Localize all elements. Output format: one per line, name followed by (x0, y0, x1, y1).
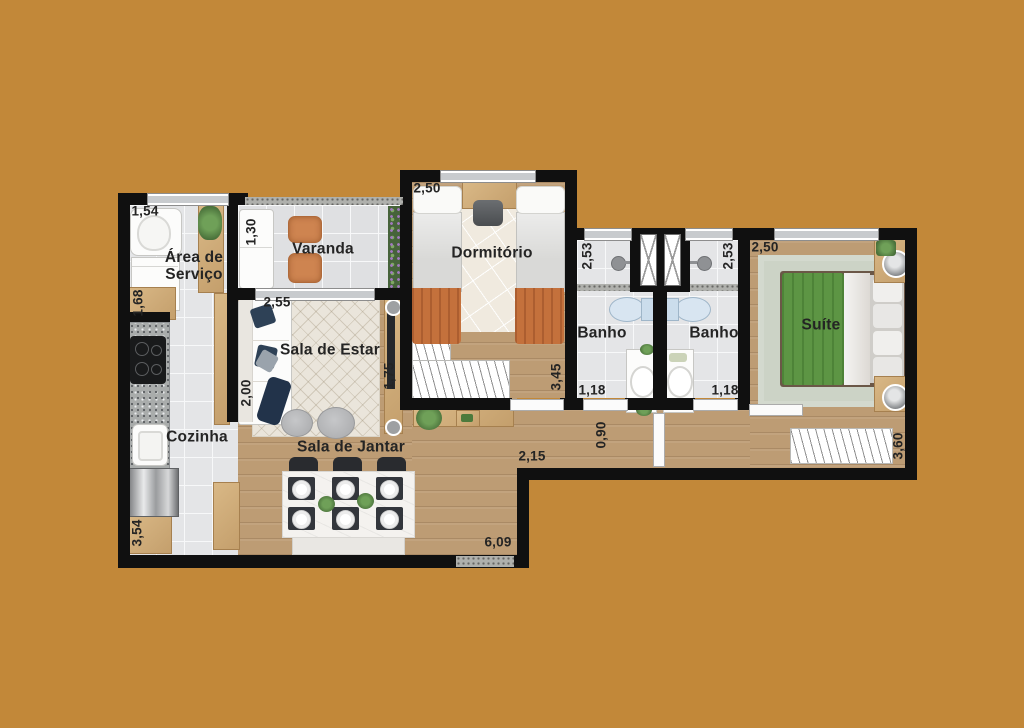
wall-outer-left (118, 193, 130, 568)
window-dormitorio (441, 171, 535, 182)
wall-step (517, 468, 529, 568)
wall-dormitorio-right (565, 172, 577, 410)
suite-pillow (872, 330, 903, 356)
toilet-bowl-left (609, 297, 645, 322)
toilet-tank-right (666, 298, 679, 321)
wall-divider-kitchen-living (227, 193, 238, 422)
shower-partition-right (690, 284, 738, 291)
room-label-dormitorio: Dormitório (451, 244, 532, 261)
varanda-pouf (288, 216, 322, 243)
dim-dormitorio-width: 2,50 (413, 182, 440, 197)
wall-duct-block (630, 228, 690, 292)
door-hallway (653, 413, 665, 467)
dim-dormitorio-height: 3,45 (550, 363, 565, 390)
room-label-suite: Suíte (802, 316, 841, 333)
dim-estar-depth: 1,75 (383, 362, 398, 389)
dim-banho-right-width: 1,18 (711, 384, 738, 399)
wall-bath-suite-divider (738, 228, 750, 410)
suite-plant (876, 240, 896, 256)
dim-banho-right-height: 2,53 (722, 242, 737, 269)
window-service (148, 194, 228, 205)
bed-pillow (516, 186, 565, 214)
dim-estar-width: 2,55 (263, 296, 290, 311)
dim-hall-height: 0,90 (595, 421, 610, 448)
dim-suite-width: 2,50 (751, 241, 778, 256)
dim-suite-height: 3,60 (892, 432, 907, 459)
dim-servico-height: 1,68 (132, 289, 147, 316)
suite-pillow-area (870, 275, 904, 383)
wall-varanda-living-b (373, 288, 412, 300)
dim-varanda-width: 1,30 (245, 218, 260, 245)
planter-green (461, 414, 473, 422)
room-label-varanda: Varanda (292, 240, 354, 257)
door-banho-left (583, 399, 628, 411)
plate (380, 480, 399, 499)
dining-bench (292, 536, 405, 555)
dim-hall-width: 2,15 (518, 450, 545, 465)
dim-banho-left-height: 2,53 (581, 242, 596, 269)
suite-wardrobe (790, 428, 893, 464)
vanity-plant (640, 344, 654, 355)
living-pouf (281, 409, 313, 437)
room-label-area-servico: Área de Serviço (165, 249, 223, 283)
bed-blanket-orange (515, 288, 564, 344)
door-suite (749, 404, 803, 416)
kitchen-sink (132, 424, 168, 466)
entry-mat (456, 556, 514, 567)
kitchen-island (213, 482, 240, 550)
service-plant (198, 206, 222, 240)
laundry-sink-basin (137, 215, 171, 251)
basin-right (667, 366, 693, 398)
dim-total-width: 6,09 (484, 536, 511, 551)
plate (336, 510, 355, 529)
cooktop (130, 336, 166, 384)
window-banho-right (686, 229, 732, 240)
toilet-bowl-right (675, 297, 711, 322)
wall-outer-right (905, 228, 917, 480)
burner (135, 342, 149, 356)
plate (380, 510, 399, 529)
wall-hall-top-c (625, 398, 695, 410)
door-banho-right (693, 399, 738, 411)
dim-estar-height: 2,00 (240, 379, 255, 406)
kitchen-sink-basin (138, 431, 163, 461)
plate (336, 480, 355, 499)
console-pot (385, 419, 402, 436)
bench-cushion-line (240, 247, 272, 248)
wall-hall-top-a (412, 398, 512, 410)
table-plant (318, 496, 335, 512)
living-pouf (317, 407, 355, 439)
window-banho-left (585, 229, 631, 240)
wall-varanda-living-a (238, 288, 258, 300)
floor-plan: Área de Serviço Varanda Dormitório Banho… (0, 0, 1024, 728)
plate (292, 510, 311, 529)
room-label-banho-right: Banho (689, 324, 738, 341)
dorm-wardrobe-horizontal (412, 360, 510, 400)
dorm-lamp (473, 200, 503, 226)
table-plant (357, 493, 374, 509)
wall-outer-bottom-right (517, 468, 917, 480)
wall-bath-center (653, 290, 667, 410)
burner (135, 362, 149, 376)
shower-head-right (697, 256, 712, 271)
varanda-parapet (245, 197, 403, 205)
plate (292, 480, 311, 499)
suite-pillow (872, 303, 903, 329)
burner (151, 364, 162, 375)
dim-cozinha-height: 3,54 (131, 519, 146, 546)
room-label-sala-estar: Sala de Estar (280, 341, 380, 358)
soap-dish (669, 353, 687, 362)
duct-shaft-right (664, 234, 681, 286)
sideboard-planter (456, 410, 480, 427)
refrigerator (128, 468, 179, 517)
room-label-cozinha: Cozinha (166, 428, 228, 445)
duct-shaft-left (640, 234, 657, 286)
burner (151, 345, 162, 356)
room-label-banho-left: Banho (577, 324, 626, 341)
room-label-sala-jantar: Sala de Jantar (297, 438, 405, 455)
suite-sheet (844, 273, 870, 385)
shower-partition-left (577, 284, 630, 291)
dim-servico-width: 1,54 (131, 205, 158, 220)
dim-banho-left-width: 1,18 (578, 384, 605, 399)
window-suite (775, 229, 878, 240)
door-dormitorio (510, 399, 564, 411)
bed-blanket-orange (412, 288, 461, 344)
